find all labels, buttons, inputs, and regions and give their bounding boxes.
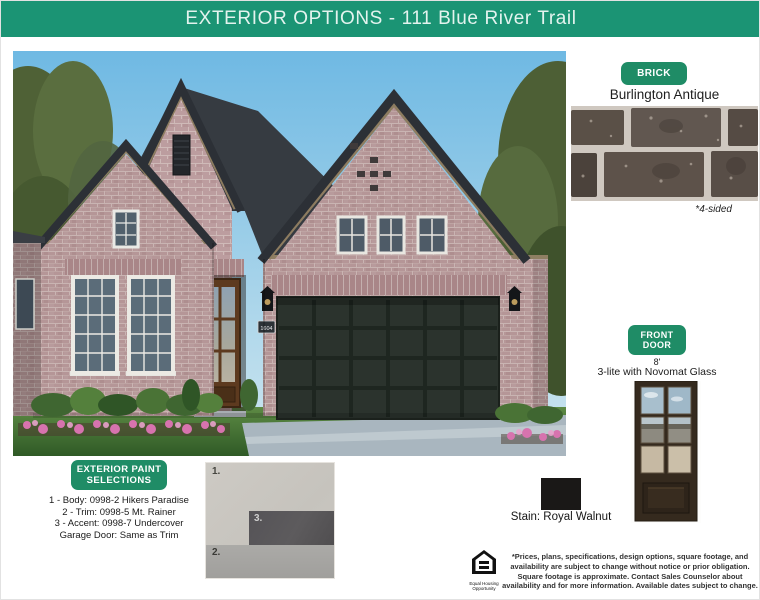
- paint-line-accent: 3 - Accent: 0998-7 Undercover: [23, 518, 215, 530]
- header-banner: EXTERIOR OPTIONS - 111 Blue River Trail: [1, 1, 760, 37]
- paint-swatch-trim: [206, 545, 334, 578]
- swatch-label-2: 2.: [212, 547, 220, 558]
- equal-housing-caption: Equal Housing Opportunity: [468, 581, 500, 591]
- stain-label: Stain: Royal Walnut: [499, 511, 623, 523]
- paint-selections-list: 1 - Body: 0998-2 Hikers Paradise 2 - Tri…: [23, 495, 215, 541]
- left-window-1: [70, 277, 120, 376]
- front-door-badge: FRONT DOOR: [628, 325, 686, 355]
- house-number: 1604: [260, 326, 272, 332]
- swatch-label-3: 3.: [254, 513, 262, 524]
- equal-housing-block: Equal Housing Opportunity: [468, 549, 500, 591]
- small-gable-window: [114, 211, 138, 247]
- brick-name: Burlington Antique: [571, 87, 758, 102]
- window-brick-header: [65, 259, 181, 275]
- paint-swatch-image: 1. 3. 2.: [206, 463, 334, 578]
- brick-photo: [571, 106, 758, 201]
- paint-line-trim: 2 - Trim: 0998-5 Mt. Rainer: [23, 507, 215, 519]
- front-door-photo: [631, 381, 701, 523]
- house-number-plaque: 1604: [258, 321, 275, 333]
- stain-swatch: [541, 478, 581, 510]
- exterior-options-sheet: EXTERIOR OPTIONS - 111 Blue River Trail: [0, 0, 760, 600]
- door-description: 3-lite with Novomat Glass: [582, 366, 732, 378]
- brick-note: *4-sided: [571, 204, 732, 215]
- gable-windows: [338, 217, 446, 253]
- paint-selections-badge: EXTERIOR PAINT SELECTIONS: [71, 460, 167, 490]
- paint-line-body: 1 - Body: 0998-2 Hikers Paradise: [23, 495, 215, 507]
- left-side-wing: [13, 231, 45, 416]
- house-rendering: 1604: [13, 51, 566, 456]
- garage-door: [277, 297, 499, 419]
- paint-line-garage: Garage Door: Same as Trim: [23, 530, 215, 542]
- side-window: [16, 279, 34, 329]
- disclaimer-text: *Prices, plans, specifications, design o…: [501, 552, 759, 591]
- left-window-2: [126, 277, 176, 376]
- door-bottom-panel: [643, 483, 689, 513]
- page-title: EXTERIOR OPTIONS - 111 Blue River Trail: [185, 8, 576, 30]
- equal-housing-icon: [471, 549, 497, 575]
- brick-badge: BRICK: [621, 62, 687, 85]
- gable-vent: [173, 135, 190, 175]
- garage-brick-header: [271, 275, 507, 295]
- swatch-label-1: 1.: [212, 466, 220, 477]
